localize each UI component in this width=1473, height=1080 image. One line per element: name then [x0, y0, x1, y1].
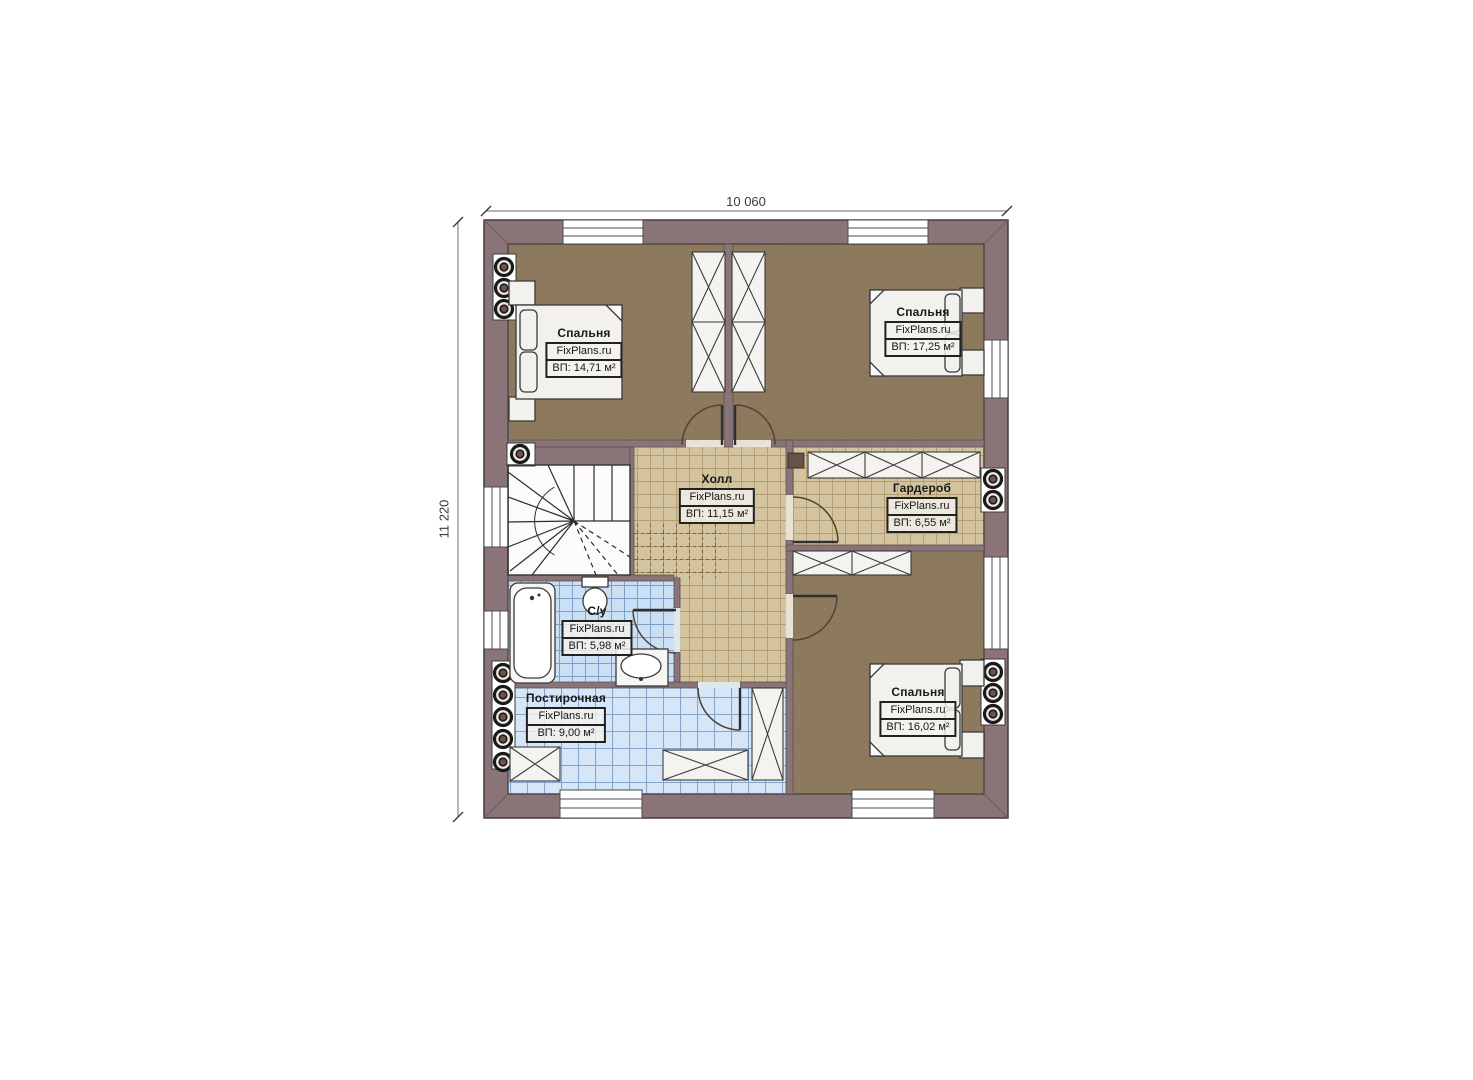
window-bottom-right — [852, 790, 934, 818]
room-label-bedroom-top-right: Спальня FixPlans.ru ВП: 17,25 м² — [884, 305, 961, 357]
dimension-height-label: 11 220 — [437, 500, 452, 539]
window-right-upper — [984, 340, 1008, 398]
closet-bedroom3 — [793, 551, 911, 575]
room-area: ВП: 17,25 м² — [884, 338, 961, 357]
room-label-bedroom-bottom-right: Спальня FixPlans.ru ВП: 16,02 м² — [879, 685, 956, 737]
room-label-bathroom: С/у FixPlans.ru ВП: 5,98 м² — [561, 604, 632, 656]
window-top-right — [848, 220, 928, 244]
vent-stack-right-upper-icon — [981, 468, 1005, 512]
closet-bedroom1 — [692, 252, 725, 392]
vent-stack-stairs-icon — [507, 443, 535, 466]
room-brand: FixPlans.ru — [886, 497, 957, 516]
room-brand: FixPlans.ru — [879, 701, 956, 720]
window-top-left — [563, 220, 643, 244]
room-area: ВП: 9,00 м² — [526, 724, 606, 743]
room-brand: FixPlans.ru — [561, 620, 632, 639]
room-name: Гардероб — [886, 481, 957, 495]
room-brand: FixPlans.ru — [545, 342, 622, 361]
cabinet-laundry-middle — [663, 750, 748, 780]
room-brand: FixPlans.ru — [884, 321, 961, 340]
room-name: Спальня — [884, 305, 961, 319]
closet-bedroom2 — [732, 252, 765, 392]
window-bottom-left — [560, 790, 642, 818]
room-name: Постирочная — [526, 691, 606, 705]
room-name: Спальня — [545, 326, 622, 340]
room-name: С/у — [561, 604, 632, 618]
window-right-lower — [984, 557, 1008, 649]
room-brand: FixPlans.ru — [679, 488, 755, 507]
bathtub — [510, 583, 555, 683]
closet-wardrobe-room — [808, 452, 980, 478]
room-label-wardrobe: Гардероб FixPlans.ru ВП: 6,55 м² — [886, 481, 957, 533]
floor-plan-canvas: 10 060 11 220 Спальня FixPlans.ru ВП: 14… — [0, 0, 1473, 1080]
dimension-width-label: 10 060 — [726, 194, 766, 209]
room-label-bedroom-top-left: Спальня FixPlans.ru ВП: 14,71 м² — [545, 326, 622, 378]
room-area: ВП: 16,02 м² — [879, 718, 956, 737]
cabinet-laundry-left — [510, 747, 560, 781]
room-area: ВП: 14,71 м² — [545, 359, 622, 378]
window-left-lower — [484, 611, 508, 649]
room-area: ВП: 11,15 м² — [679, 505, 755, 524]
room-name: Холл — [679, 472, 755, 486]
room-label-hall: Холл FixPlans.ru ВП: 11,15 м² — [679, 472, 755, 524]
window-left-upper — [484, 487, 508, 547]
room-area: ВП: 6,55 м² — [886, 514, 957, 533]
room-name: Спальня — [879, 685, 956, 699]
room-label-laundry: Постирочная FixPlans.ru ВП: 9,00 м² — [526, 691, 606, 743]
floor-plan-drawing — [0, 0, 1473, 1080]
cabinet-laundry-tall — [752, 688, 783, 780]
room-area: ВП: 5,98 м² — [561, 637, 632, 656]
